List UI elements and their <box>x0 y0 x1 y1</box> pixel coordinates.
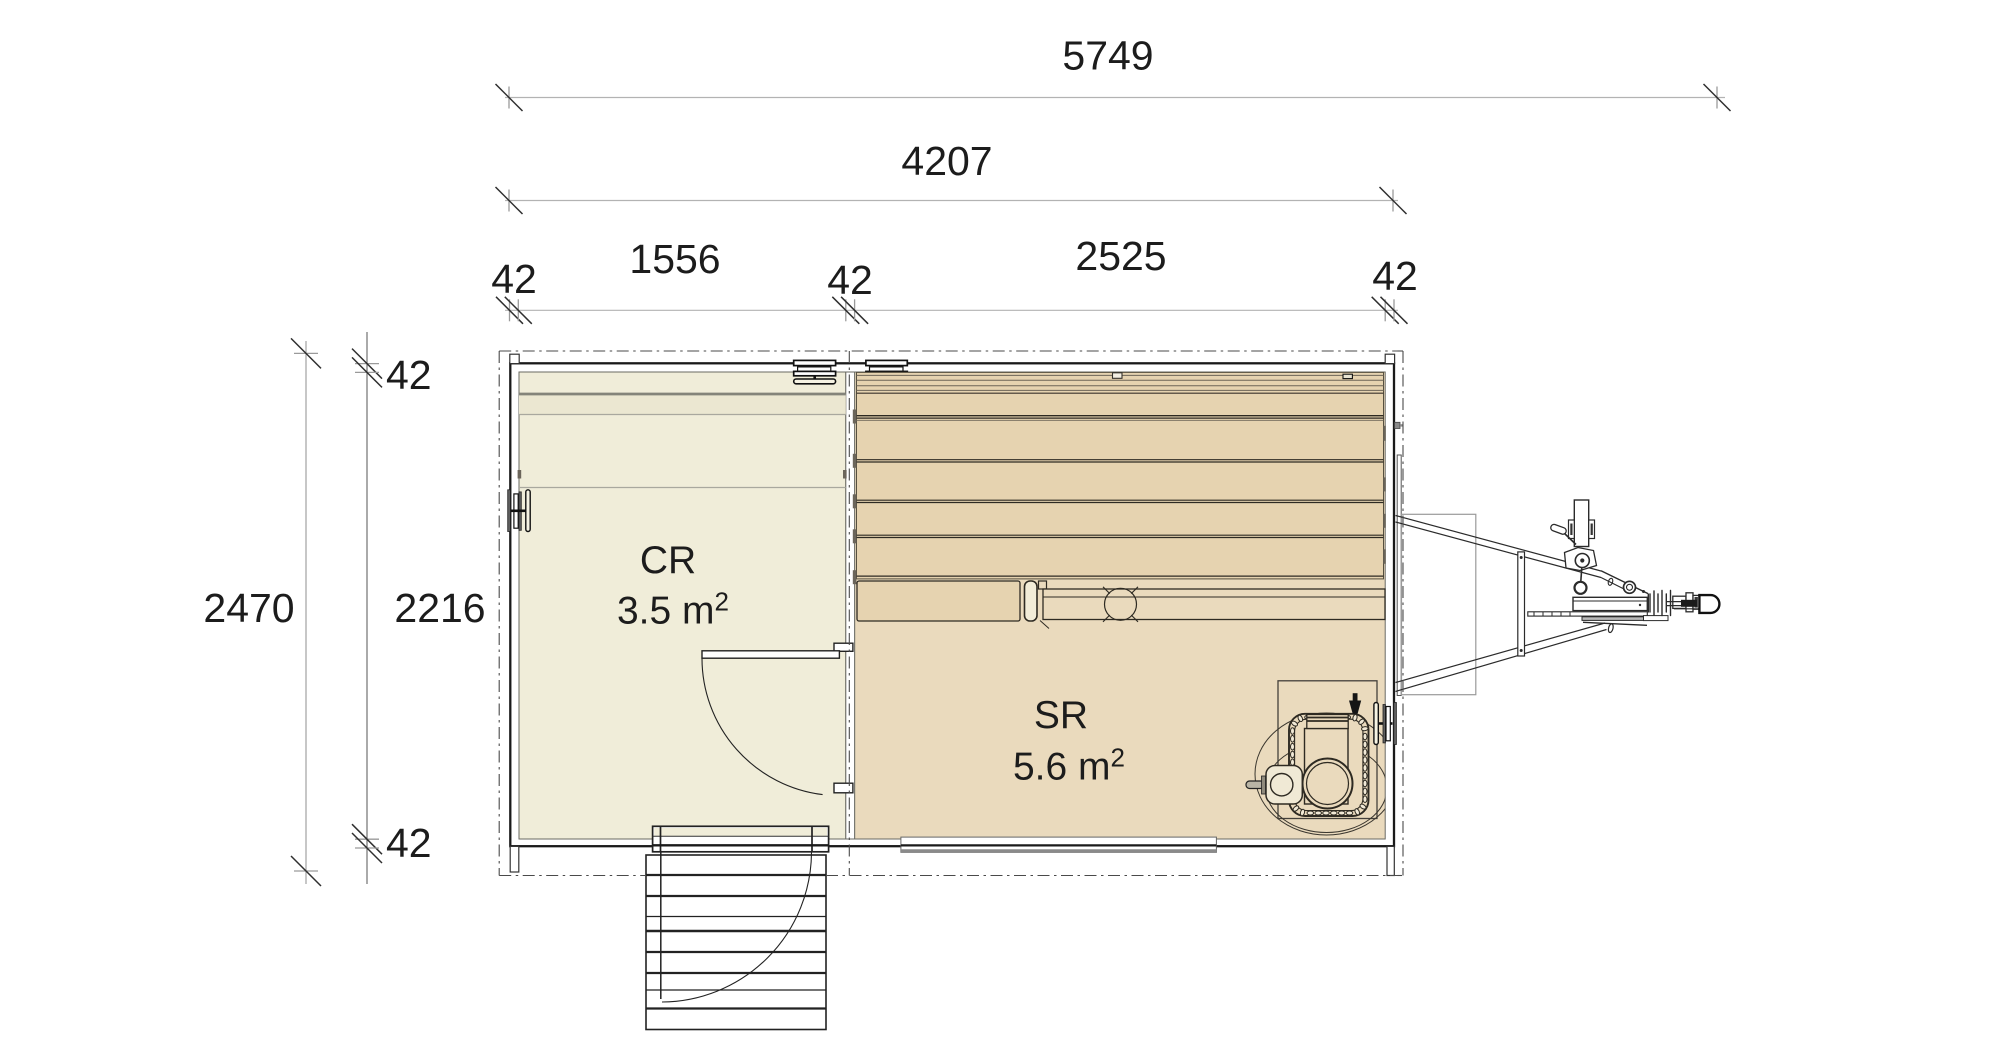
svg-text:CR: CR <box>640 539 696 582</box>
svg-text:2470: 2470 <box>203 585 294 631</box>
svg-text:5.6 m2: 5.6 m2 <box>1013 743 1125 789</box>
svg-text:1556: 1556 <box>629 236 720 282</box>
svg-text:5749: 5749 <box>1062 33 1153 79</box>
svg-text:42: 42 <box>827 257 873 303</box>
svg-text:42: 42 <box>491 256 537 302</box>
svg-text:4207: 4207 <box>901 138 992 184</box>
svg-text:42: 42 <box>386 820 432 866</box>
svg-text:SR: SR <box>1034 694 1088 737</box>
svg-text:2216: 2216 <box>394 585 485 631</box>
svg-text:2525: 2525 <box>1075 233 1166 279</box>
svg-text:3.5 m2: 3.5 m2 <box>617 587 729 633</box>
svg-text:42: 42 <box>1372 253 1418 299</box>
svg-text:42: 42 <box>386 352 432 398</box>
